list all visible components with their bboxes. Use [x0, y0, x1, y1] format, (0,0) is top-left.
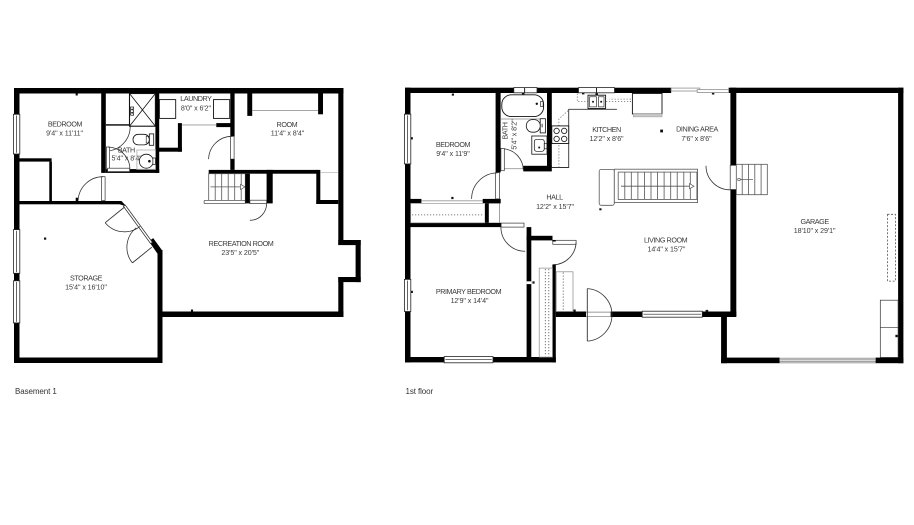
svg-text:11'4" x 8'4": 11'4" x 8'4": [271, 130, 305, 138]
svg-text:9'4" x 11'9": 9'4" x 11'9": [436, 150, 470, 158]
svg-text:1st floor: 1st floor: [406, 387, 434, 396]
svg-text:BEDROOM: BEDROOM: [436, 140, 471, 149]
svg-text:PRIMARY BEDROOM: PRIMARY BEDROOM: [436, 287, 502, 296]
svg-text:LAUNDRY: LAUNDRY: [180, 94, 212, 103]
svg-text:KITCHEN: KITCHEN: [592, 125, 621, 134]
svg-text:9'4" x 11'11": 9'4" x 11'11": [46, 130, 83, 138]
svg-text:BEDROOM: BEDROOM: [48, 120, 83, 129]
svg-text:GARAGE: GARAGE: [800, 217, 829, 226]
svg-text:STORAGE: STORAGE: [70, 274, 103, 283]
svg-text:12'2" x 8'6": 12'2" x 8'6": [590, 135, 625, 143]
svg-text:15'4" x 16'10": 15'4" x 16'10": [65, 284, 107, 292]
svg-text:18'10" x 29'1": 18'10" x 29'1": [794, 227, 836, 235]
svg-text:HALL: HALL: [546, 193, 563, 202]
svg-text:12'9" x 14'4": 12'9" x 14'4": [451, 297, 489, 305]
svg-text:DINING AREA: DINING AREA: [676, 124, 718, 133]
svg-text:LIVING ROOM: LIVING ROOM: [644, 235, 688, 244]
svg-text:BATH: BATH: [501, 122, 510, 139]
svg-text:12'2" x 15'7": 12'2" x 15'7": [536, 203, 574, 211]
svg-text:ROOM: ROOM: [277, 120, 298, 129]
svg-text:RECREATION ROOM: RECREATION ROOM: [209, 239, 274, 248]
svg-text:5'4" x 8'2": 5'4" x 8'2": [511, 119, 519, 150]
svg-text:14'4" x 15'7": 14'4" x 15'7": [647, 246, 685, 254]
svg-text:Basement 1: Basement 1: [15, 387, 57, 396]
svg-text:7'6" x 8'6": 7'6" x 8'6": [681, 135, 712, 143]
svg-text:23'5" x 20'5": 23'5" x 20'5": [221, 249, 259, 257]
svg-text:BATH: BATH: [118, 146, 135, 155]
svg-text:8'0" x 6'2": 8'0" x 6'2": [181, 104, 212, 112]
